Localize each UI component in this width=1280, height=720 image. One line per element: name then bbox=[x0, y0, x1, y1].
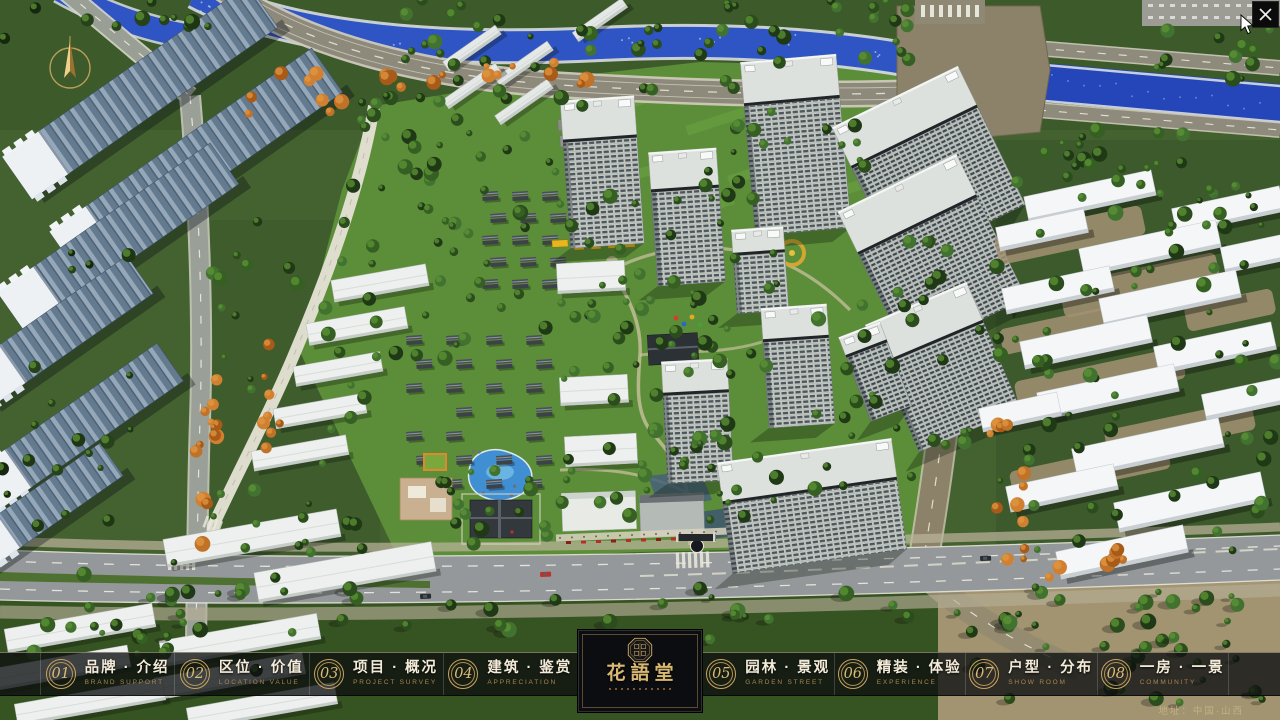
project-seal-emblem bbox=[627, 637, 653, 663]
nav-number-badge: 08 bbox=[1101, 659, 1131, 689]
nav-item-sublabel: SHOW ROOM bbox=[1008, 680, 1066, 687]
nav-item-label: 一房 · 一景 bbox=[1140, 661, 1225, 677]
nav-item-location[interactable]: 02 区位 · 价值LOCATION VALUE bbox=[174, 653, 308, 695]
nav-item-garden[interactable]: 05 园林 · 景观GARDEN STREET bbox=[702, 653, 834, 695]
nav-number-badge: 04 bbox=[448, 659, 478, 689]
nav-item-label: 项目 · 概况 bbox=[353, 661, 438, 677]
nav-item-label: 区位 · 价值 bbox=[219, 661, 304, 677]
nav-item-sublabel: GARDEN STREET bbox=[745, 680, 824, 687]
project-logo-panel: 花語堂 bbox=[578, 630, 702, 712]
nav-item-project[interactable]: 03 项目 · 概况PROJECT SURVEY bbox=[309, 653, 443, 695]
nav-number-badge: 02 bbox=[180, 659, 210, 689]
nav-group-left: 01 品牌 · 介绍BRAND SUPPORT 02 区位 · 价值LOCATI… bbox=[40, 653, 578, 695]
nav-item-sublabel: LOCATION VALUE bbox=[219, 680, 300, 687]
nav-item-sublabel: EXPERIENCE bbox=[877, 680, 937, 687]
nav-number-badge: 01 bbox=[46, 659, 76, 689]
nav-number-badge: 05 bbox=[706, 659, 736, 689]
nav-item-label: 品牌 · 介绍 bbox=[85, 661, 170, 677]
nav-item-interior[interactable]: 06 精装 · 体验EXPERIENCE bbox=[834, 653, 966, 695]
close-button[interactable] bbox=[1252, 1, 1279, 28]
nav-item-floorplan[interactable]: 07 户型 · 分布SHOW ROOM bbox=[965, 653, 1097, 695]
nav-number-badge: 06 bbox=[838, 659, 868, 689]
project-logo-title: 花語堂 bbox=[601, 663, 678, 685]
nav-item-sublabel: APPRECIATION bbox=[487, 680, 557, 687]
nav-item-sublabel: COMMUNITY bbox=[1140, 680, 1196, 687]
nav-item-label: 户型 · 分布 bbox=[1008, 661, 1093, 677]
nav-number-badge: 03 bbox=[314, 659, 344, 689]
nav-group-right: 05 园林 · 景观GARDEN STREET 06 精装 · 体验EXPERI… bbox=[702, 653, 1229, 695]
close-icon bbox=[1258, 7, 1273, 22]
app-window: 01 品牌 · 介绍BRAND SUPPORT 02 区位 · 价值LOCATI… bbox=[0, 0, 1280, 720]
nav-item-sublabel: PROJECT SURVEY bbox=[353, 680, 437, 687]
nav-item-architecture[interactable]: 04 建筑 · 鉴赏APPRECIATION bbox=[443, 653, 578, 695]
nav-number-badge: 07 bbox=[969, 659, 999, 689]
nav-item-brand[interactable]: 01 品牌 · 介绍BRAND SUPPORT bbox=[40, 653, 174, 695]
nav-item-label: 建筑 · 鉴赏 bbox=[487, 661, 572, 677]
project-logo-subtitle bbox=[609, 688, 671, 690]
nav-item-views[interactable]: 08 一房 · 一景COMMUNITY bbox=[1097, 653, 1230, 695]
nav-item-label: 园林 · 景观 bbox=[745, 661, 830, 677]
nav-item-sublabel: BRAND SUPPORT bbox=[85, 680, 164, 687]
masterplan-3d-view[interactable] bbox=[0, 0, 1280, 720]
nav-item-label: 精装 · 体验 bbox=[877, 661, 962, 677]
project-address: 地址：中国·山西 bbox=[1158, 703, 1244, 717]
